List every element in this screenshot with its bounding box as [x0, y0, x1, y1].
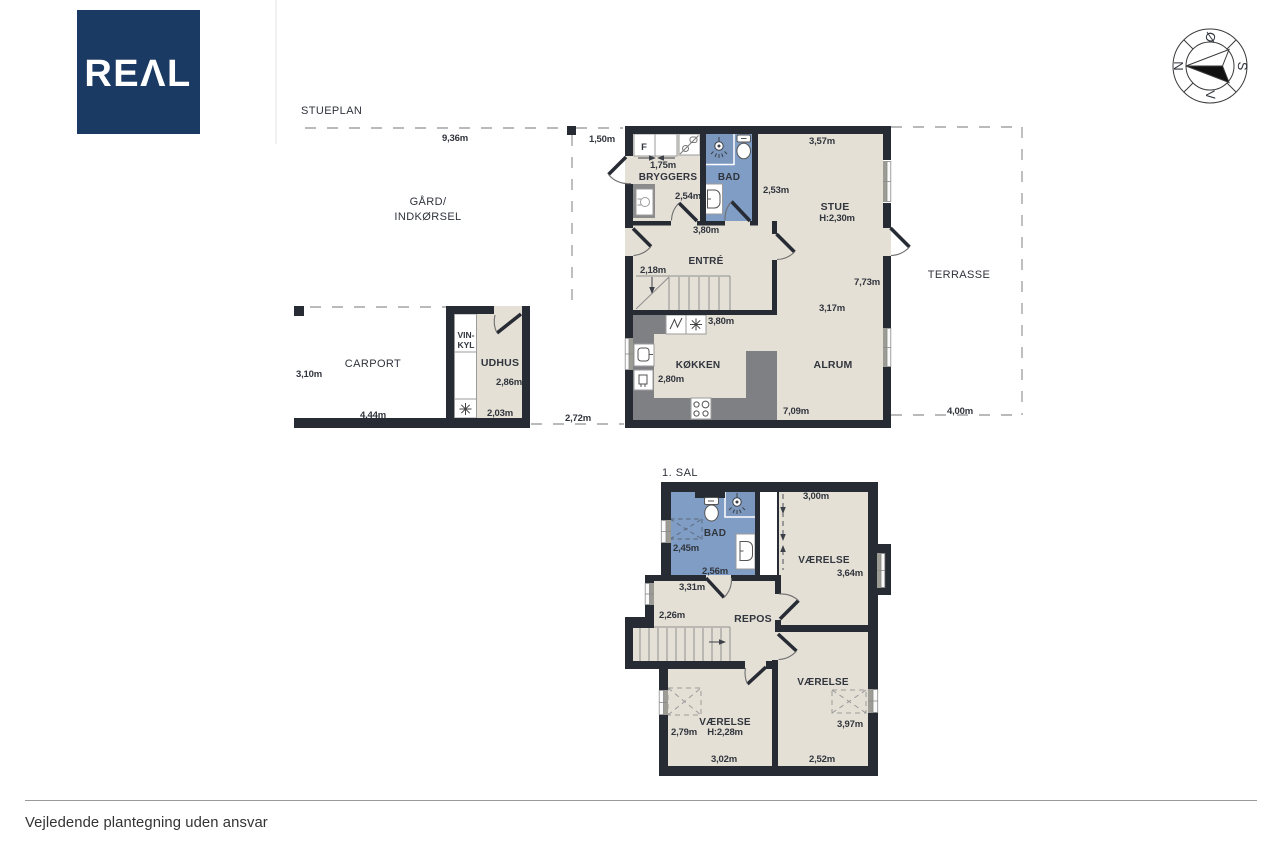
svg-text:2,52m: 2,52m: [809, 754, 835, 765]
svg-text:GÅRD/: GÅRD/: [410, 195, 447, 208]
svg-text:2,18m: 2,18m: [640, 265, 666, 276]
svg-text:BAD: BAD: [718, 172, 740, 183]
svg-text:CARPORT: CARPORT: [345, 358, 401, 370]
svg-text:2,86m: 2,86m: [496, 377, 522, 388]
svg-text:4,00m: 4,00m: [947, 406, 973, 417]
svg-text:2,80m: 2,80m: [658, 374, 684, 385]
svg-text:3,57m: 3,57m: [809, 136, 835, 147]
svg-text:ALRUM: ALRUM: [814, 359, 853, 371]
svg-text:9,36m: 9,36m: [442, 133, 468, 144]
svg-text:7,73m: 7,73m: [854, 277, 880, 288]
svg-text:F: F: [641, 142, 647, 153]
svg-text:2,03m: 2,03m: [487, 408, 513, 419]
svg-text:3,31m: 3,31m: [679, 582, 705, 593]
svg-text:3,02m: 3,02m: [711, 754, 737, 765]
svg-text:2,53m: 2,53m: [763, 185, 789, 196]
svg-text:V: V: [1203, 90, 1219, 100]
svg-text:VÆRELSE: VÆRELSE: [798, 555, 850, 566]
svg-text:KØKKEN: KØKKEN: [676, 360, 721, 371]
svg-text:3,10m: 3,10m: [296, 369, 322, 380]
svg-text:BRYGGERS: BRYGGERS: [639, 172, 698, 183]
svg-text:H:2,28m: H:2,28m: [707, 727, 743, 738]
svg-text:ENTRÉ: ENTRÉ: [689, 254, 724, 267]
svg-text:BAD: BAD: [704, 528, 726, 539]
svg-text:STUE: STUE: [821, 201, 850, 213]
svg-text:3,97m: 3,97m: [837, 719, 863, 730]
svg-text:REPOS: REPOS: [734, 613, 772, 625]
svg-text:3,80m: 3,80m: [708, 316, 734, 327]
svg-text:2,79m: 2,79m: [671, 727, 697, 738]
svg-text:3,64m: 3,64m: [837, 568, 863, 579]
svg-text:2,54m: 2,54m: [675, 191, 701, 202]
svg-text:1. SAL: 1. SAL: [662, 467, 698, 479]
svg-text:N: N: [1171, 61, 1186, 70]
svg-text:3,00m: 3,00m: [803, 491, 829, 502]
svg-text:2,72m: 2,72m: [565, 413, 591, 424]
svg-text:REΛL: REΛL: [84, 53, 191, 95]
svg-text:3,17m: 3,17m: [819, 303, 845, 314]
svg-text:VÆRELSE: VÆRELSE: [797, 677, 849, 688]
svg-text:1,75m: 1,75m: [650, 160, 676, 171]
svg-text:7,09m: 7,09m: [783, 406, 809, 417]
svg-text:TERRASSE: TERRASSE: [928, 269, 991, 281]
svg-text:Vejledende plantegning uden an: Vejledende plantegning uden ansvar: [25, 815, 268, 831]
svg-text:KYL: KYL: [458, 340, 475, 350]
svg-text:2,45m: 2,45m: [673, 543, 699, 554]
svg-text:S: S: [1235, 61, 1251, 71]
svg-text:2,26m: 2,26m: [659, 610, 685, 621]
svg-text:H:2,30m: H:2,30m: [819, 213, 855, 224]
svg-text:VIN-: VIN-: [458, 330, 475, 340]
svg-text:STUEPLAN: STUEPLAN: [301, 105, 362, 117]
svg-text:INDKØRSEL: INDKØRSEL: [394, 211, 461, 223]
svg-text:UDHUS: UDHUS: [481, 357, 519, 369]
svg-text:1,50m: 1,50m: [589, 134, 615, 145]
svg-text:3,80m: 3,80m: [693, 225, 719, 236]
